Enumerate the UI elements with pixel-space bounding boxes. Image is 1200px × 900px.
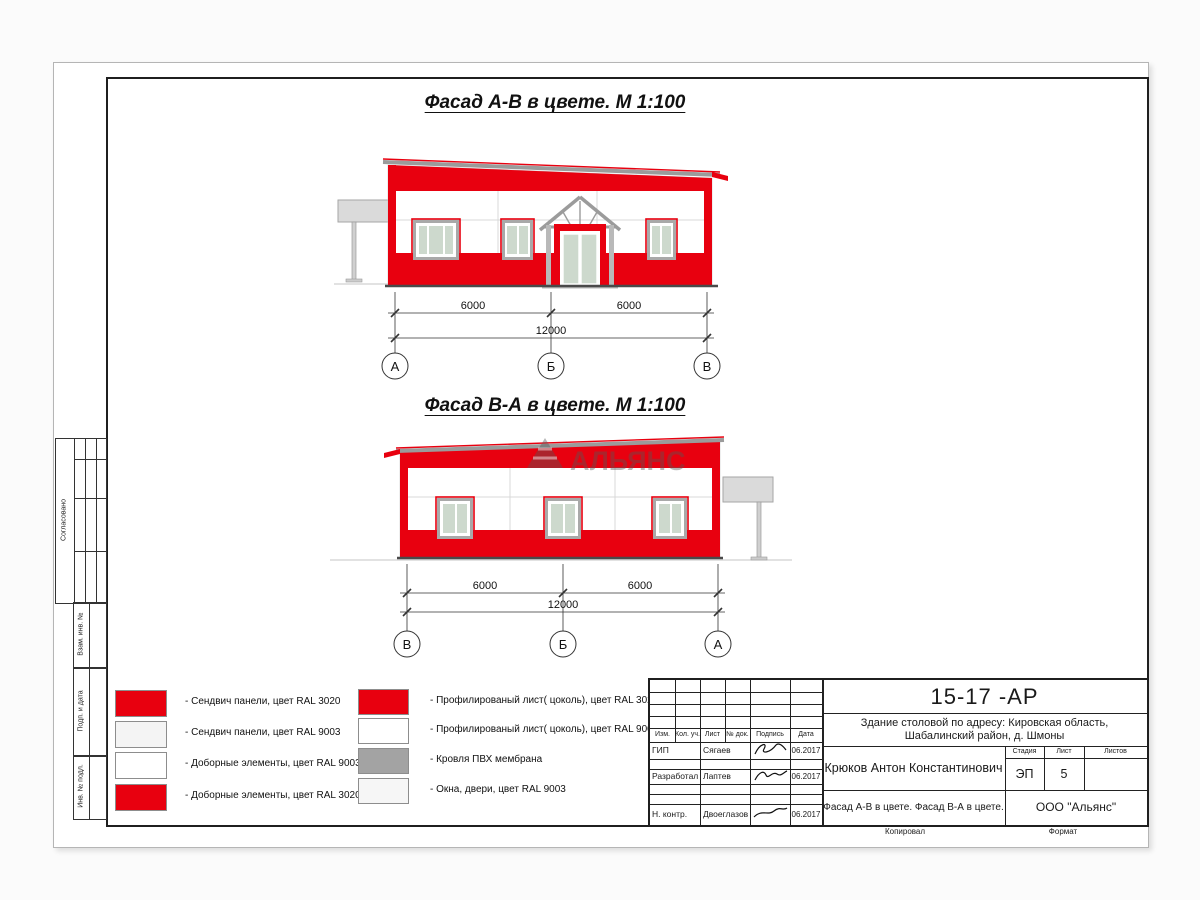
dimensions [400,564,725,631]
stamp-role: Разработал [652,769,698,784]
stamp-role: Н. контр. [652,804,698,825]
replace-inv-label: Взам. инв. № [78,612,85,655]
sign-date-label: Подп. и дата [78,690,85,731]
stage-value: ЭП [1005,758,1044,790]
axis-markers: А Б В [382,353,720,379]
signature-icon [752,804,788,822]
window-2 [544,497,582,540]
axis-letter: А [391,359,400,374]
window-1 [412,219,460,261]
dim-label: 6000 [461,300,485,312]
legend-label: - Сендвич панели, цвет RAL 9003 [185,727,340,738]
legend-swatch [115,690,167,717]
stamp-header-kol: Кол. уч. [675,728,700,742]
axis-markers: В Б А [394,631,731,657]
copied-label: Копировал [850,827,960,836]
inv-orig-label: Инв. № подл. [78,764,85,808]
watermark-text: АЛЬЯНС [570,446,686,476]
format-label: Формат [1008,827,1118,836]
canopy-right [723,477,773,560]
legend-swatch [115,721,167,748]
stamp-header-izm: Изм. [650,728,675,742]
facade-ba-title: Фасад В-А в цвете. М 1:100 [375,395,735,417]
stamp-date: 06.2017 [790,804,822,825]
stamp-name: Двоеглазов [703,804,748,825]
sheet-label: Лист [1044,746,1084,758]
stage-label: Стадия [1005,746,1044,758]
window-1 [436,497,474,540]
stamp-header-doc: № док. [725,728,750,742]
dim-label-total: 12000 [536,325,567,337]
stamp-header-list: Лист [700,728,725,742]
legend-label: - Профилированый лист( цоколь), цвет RAL… [430,695,658,706]
legend-swatch [358,689,409,715]
axis-letter: В [703,359,712,374]
stamp-name: Сягаев [703,742,748,759]
legend-label: - Окна, двери, цвет RAL 9003 [430,784,566,795]
stamp-date: 06.2017 [790,742,822,759]
gutter-left [384,449,400,458]
axis-letter: А [714,637,723,652]
legend-swatch [358,748,409,774]
title-block: Изм. Кол. уч. Лист № док. Подпись Дата Г… [648,678,1147,825]
axis-letter: Б [559,637,568,652]
sheet-value: 5 [1044,758,1084,790]
facade-ba-drawing: АЛЬЯНС [330,420,800,670]
legend-label: - Сендвич панели, цвет RAL 3020 [185,696,340,707]
window-3 [652,497,688,540]
author-name: Крюков Антон Константинович [822,746,1005,790]
signature-icon [752,740,788,758]
facade-ab-drawing: 6000 6000 12000 А Б В [330,145,770,390]
canopy-left [334,200,390,284]
window-3 [646,219,677,261]
facade-ab-title: Фасад А-В в цвете. М 1:100 [375,92,735,114]
stamp-header-date: Дата [790,728,822,742]
sheets-label: Листов [1084,746,1147,758]
legend-swatch [115,784,167,811]
company-name: ООО "Альянс" [1005,790,1147,825]
legend-swatch [358,778,409,804]
project-description: Здание столовой по адресу: Кировская обл… [822,713,1147,746]
axis-letter: Б [547,359,556,374]
dimensions [388,292,714,353]
legend-swatch [358,718,409,744]
axis-letter: В [403,637,412,652]
sheets-value [1084,758,1147,790]
stamp-name: Лаптев [703,769,748,784]
legend-swatch [115,752,167,779]
signature-icon [752,767,788,785]
legend-label: - Доборные элементы, цвет RAL 9003 [185,758,361,769]
stamp-role: ГИП [652,742,698,759]
dim-label: 6000 [617,300,641,312]
dim-label: 6000 [628,580,652,592]
drawing-sheet-page: Согласовано Взам. инв. № Подп. и дата Ин… [0,0,1200,900]
stamp-date: 06.2017 [790,769,822,784]
dim-label-total: 12000 [548,599,579,611]
sheet-title: Фасад А-В в цвете. Фасад В-А в цвете. [822,790,1005,825]
approved-label: Согласовано [61,499,68,541]
legend-label: - Профилированый лист( цоколь), цвет RAL… [430,724,658,735]
doc-number: 15-17 -АР [822,680,1147,713]
legend-label: - Доборные элементы, цвет RAL 3020 [185,790,361,801]
window-2 [501,219,534,261]
legend-label: - Кровля ПВХ мембрана [430,754,542,765]
dim-label: 6000 [473,580,497,592]
